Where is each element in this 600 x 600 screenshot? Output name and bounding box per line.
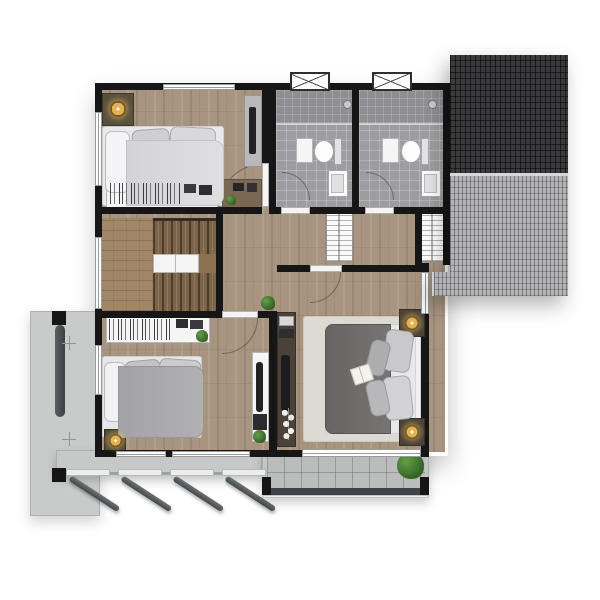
wall-master-north-a xyxy=(277,265,310,272)
floor-plan-canvas xyxy=(0,0,600,600)
hallway-wardrobe-right xyxy=(419,211,446,262)
wall-balcony-south-stub xyxy=(262,450,302,457)
bedroom2-duvet xyxy=(118,366,204,438)
bedroom2-bookshelf-books xyxy=(109,319,173,340)
stair-side-landing xyxy=(100,218,153,311)
bedroom2-console-plant xyxy=(253,430,266,443)
awning-mount xyxy=(170,469,214,476)
bedroom1-lamp xyxy=(110,101,126,117)
stair-railing-wall xyxy=(216,213,223,313)
bedroom1-cabinet-tv xyxy=(249,107,256,154)
louver-window-bathroom-right xyxy=(372,72,412,91)
wall-bath-south-b xyxy=(310,207,365,214)
balcony-railing xyxy=(262,488,429,495)
master-tv xyxy=(281,355,290,411)
bathroom-right-shower-head-icon xyxy=(428,100,437,109)
bathroom-left-mat xyxy=(296,138,313,163)
bathroom-left-sink-basin xyxy=(331,174,344,193)
balcony-sliding-door xyxy=(302,449,421,457)
door-leaf-master xyxy=(310,265,342,272)
bathroom-left-glass-partition xyxy=(276,123,352,125)
roof-ridge-line xyxy=(450,173,568,176)
balcony-corner-left xyxy=(262,477,271,495)
door-leaf-bedroom2 xyxy=(222,311,258,318)
survey-cross-mark-top xyxy=(62,336,76,350)
master-console-item xyxy=(279,316,294,326)
master-console-item xyxy=(279,329,294,338)
wall-bedroom1-south xyxy=(95,207,262,214)
stair-lower-flight xyxy=(153,273,217,311)
awning-mount xyxy=(66,469,110,476)
bathroom-left-shower-head-icon xyxy=(343,100,352,109)
bathroom-right-sink-basin xyxy=(424,174,437,193)
master-lamp-top xyxy=(405,316,419,330)
wall-closet-nook-west xyxy=(415,207,422,265)
louver-window-bathroom-left xyxy=(290,72,330,91)
wall-between-bathrooms xyxy=(352,88,359,212)
awning-strut xyxy=(172,475,224,512)
awning-mount xyxy=(118,469,162,476)
slab-column-top xyxy=(52,311,66,325)
master-headboard xyxy=(415,326,421,432)
bathroom-left-shower-zone xyxy=(276,90,352,124)
bedroom1-desk-item xyxy=(247,183,257,192)
stair-cabinet xyxy=(153,254,199,273)
bedroom1-dresser-item xyxy=(184,184,196,193)
bedroom2-console-item xyxy=(253,414,267,430)
window-bedroom1-west xyxy=(95,112,102,186)
bedroom2-tv xyxy=(256,362,263,412)
bedroom2-floor-lamp xyxy=(109,434,122,447)
door-leaf-bathroom-left xyxy=(281,207,310,214)
door-leaf-bedroom1 xyxy=(262,163,269,207)
wall-bedroom1-east xyxy=(262,88,269,164)
stair-mid-landing xyxy=(199,254,217,273)
bathroom-right-toilet-tank xyxy=(421,138,429,165)
roof-light-extension xyxy=(432,272,568,296)
wall-master-north-b xyxy=(342,265,421,272)
bathroom-right-toilet-bowl xyxy=(401,140,421,163)
wall-bath-south-c xyxy=(394,207,450,214)
stair-upper-flight xyxy=(153,218,217,254)
door-leaf-bathroom-right xyxy=(365,207,394,214)
bathroom-left-toilet-tank xyxy=(334,138,342,165)
hallway-wardrobe-left xyxy=(326,213,353,262)
balcony-railing-cap xyxy=(262,495,429,498)
bedroom1-dresser-item xyxy=(199,185,212,195)
window-bedroom1-north xyxy=(163,84,235,90)
window-bedroom2-south-a xyxy=(116,451,166,457)
wall-bathroom-left-west xyxy=(269,88,276,212)
slab-column-bottom xyxy=(52,468,66,482)
awning-mount xyxy=(222,469,266,476)
roof-dark-tiles xyxy=(450,55,568,175)
hall-corner-plant xyxy=(261,296,275,310)
bedroom2-shelf-item xyxy=(190,320,203,329)
master-console-flowers xyxy=(280,408,296,440)
wall-east-upper xyxy=(443,83,450,265)
bathroom-right-mat xyxy=(382,138,399,163)
window-stair-west xyxy=(95,237,102,309)
wall-bath-south-a xyxy=(269,207,281,214)
balcony-corner-right xyxy=(420,477,429,495)
bedroom1-desk-plant xyxy=(226,195,236,205)
bedroom2-shelf-item xyxy=(176,319,188,328)
bedroom2-shelf-plant xyxy=(196,330,208,342)
wall-bedroom2-north xyxy=(95,311,222,318)
wall-divider-bedrooms xyxy=(269,311,277,457)
window-bedroom2-south-b xyxy=(172,451,250,457)
survey-cross-mark-bottom xyxy=(62,432,76,446)
window-master-east xyxy=(421,272,429,314)
bathroom-left-toilet-bowl xyxy=(314,140,334,163)
master-lamp-bottom xyxy=(405,425,419,439)
bedroom1-dresser-books xyxy=(110,183,180,204)
window-bedroom2-west xyxy=(95,345,102,395)
bathroom-right-glass-partition xyxy=(359,123,443,125)
bedroom1-desk-item xyxy=(233,183,244,191)
roof-light-tiles xyxy=(450,176,568,272)
awning-strut xyxy=(120,475,172,512)
